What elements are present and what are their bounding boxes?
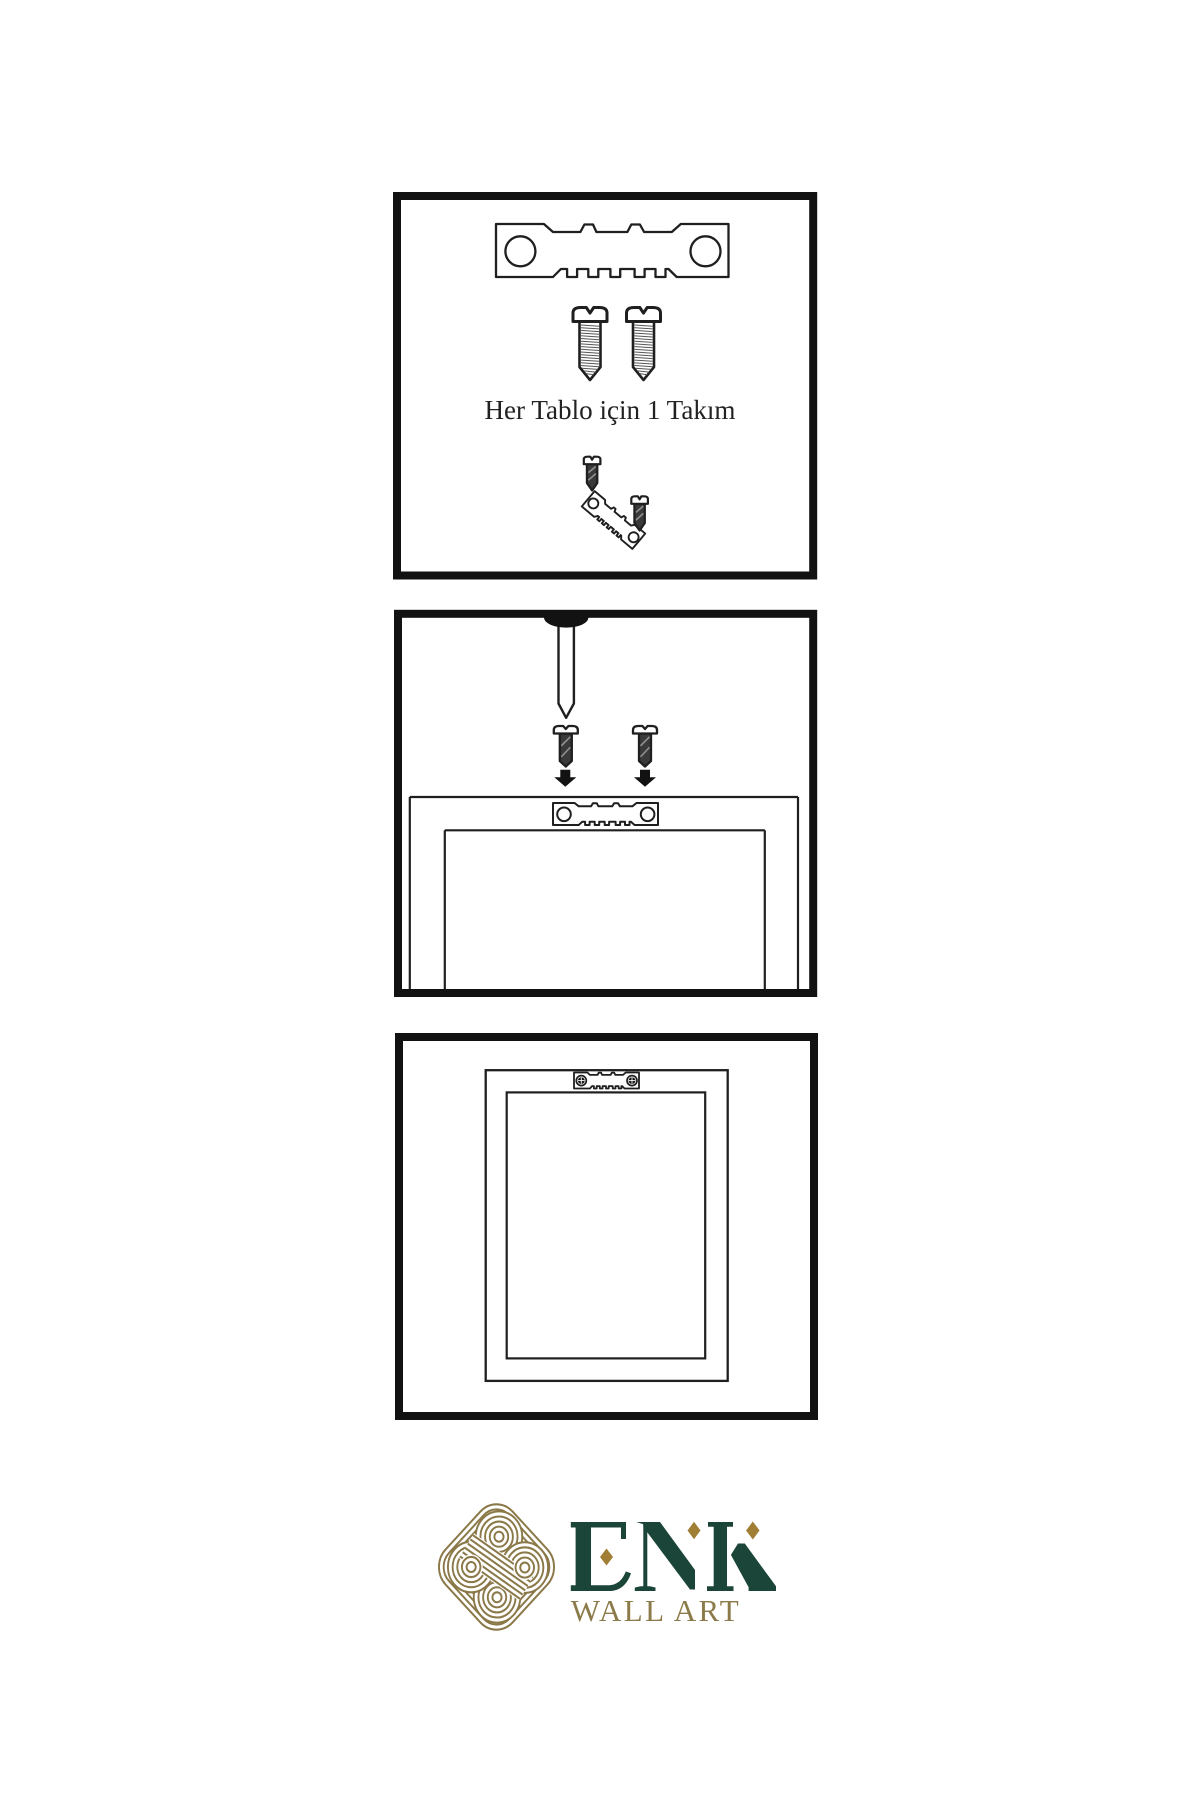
svg-text:WALL ART: WALL ART [571, 1593, 741, 1628]
svg-text:Her Tablo için 1 Takım: Her Tablo için 1 Takım [484, 395, 735, 425]
